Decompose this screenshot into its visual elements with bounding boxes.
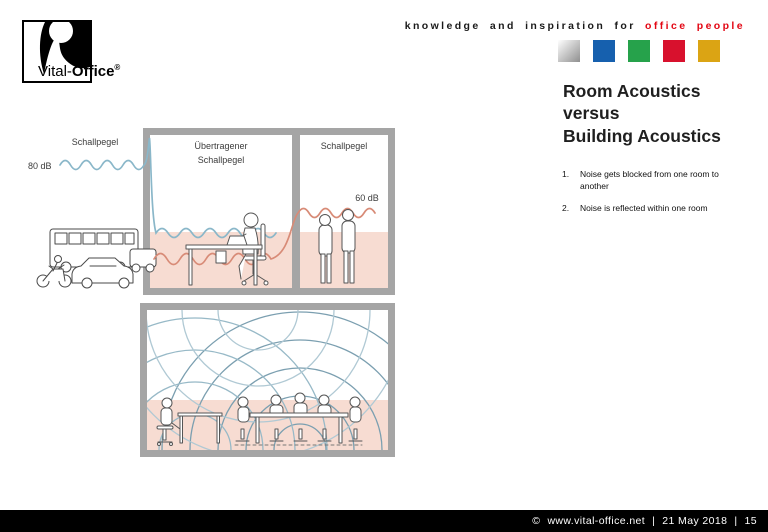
list-item-text: Noise gets blocked from one room to anot… [580,168,750,193]
label-60db: 60 dB [355,193,379,203]
label-room2: Schallpegel [321,141,368,151]
label-80db: 80 dB [28,161,52,171]
presentation-slide: Vital-Office® knowledge and inspiration … [0,0,768,532]
brand-square-red [663,40,685,62]
tagline: knowledge and inspiration for office peo… [405,20,745,32]
diagram-room-acoustics [140,303,395,457]
list-item-number: 2. [562,202,580,214]
footer-page-number: 15 [745,515,757,527]
logo-text-bold: Office [72,63,115,80]
label-room1-line1: Übertragener [194,141,247,151]
brand-square-gold [698,40,720,62]
label-room1-line2: Schallpegel [198,155,245,165]
list-item-text: Noise is reflected within one room [580,202,708,214]
bullet-list: 1. Noise gets blocked from one room to a… [562,168,750,223]
title-line-1: Room Acoustics [563,80,763,102]
list-item: 2. Noise is reflected within one room [562,202,750,214]
list-item-number: 1. [562,168,580,193]
brand-squares [558,40,720,62]
list-item: 1. Noise gets blocked from one room to a… [562,168,750,193]
footer-url: www.vital-office.net [547,515,645,527]
footer-separator: | [652,515,655,527]
logo-text-light: Vital- [38,63,72,80]
registered-mark: ® [114,63,120,72]
logo-wordmark: Vital-Office® [38,63,120,80]
tagline-highlight: office people [645,20,745,32]
brand-square-silver [558,40,580,62]
traffic-drawing [37,229,156,288]
title-line-2: versus [563,102,763,124]
slide-title: Room Acoustics versus Building Acoustics [563,80,763,147]
footer-date: 21 May 2018 [662,515,727,527]
title-line-3: Building Acoustics [563,125,763,147]
label-schallpegel-outside: Schallpegel [72,137,119,147]
brand-square-green [628,40,650,62]
brand-square-blue [593,40,615,62]
diagram-building-acoustics: Schallpegel 80 dB Übertragener Schallpeg… [20,125,400,297]
footer-copyright: © [532,515,540,527]
footer-separator: | [734,515,737,527]
tagline-black: knowledge and inspiration for [405,20,636,32]
footer-bar: ©www.vital-office.net|21 May 2018|15 [0,510,768,532]
